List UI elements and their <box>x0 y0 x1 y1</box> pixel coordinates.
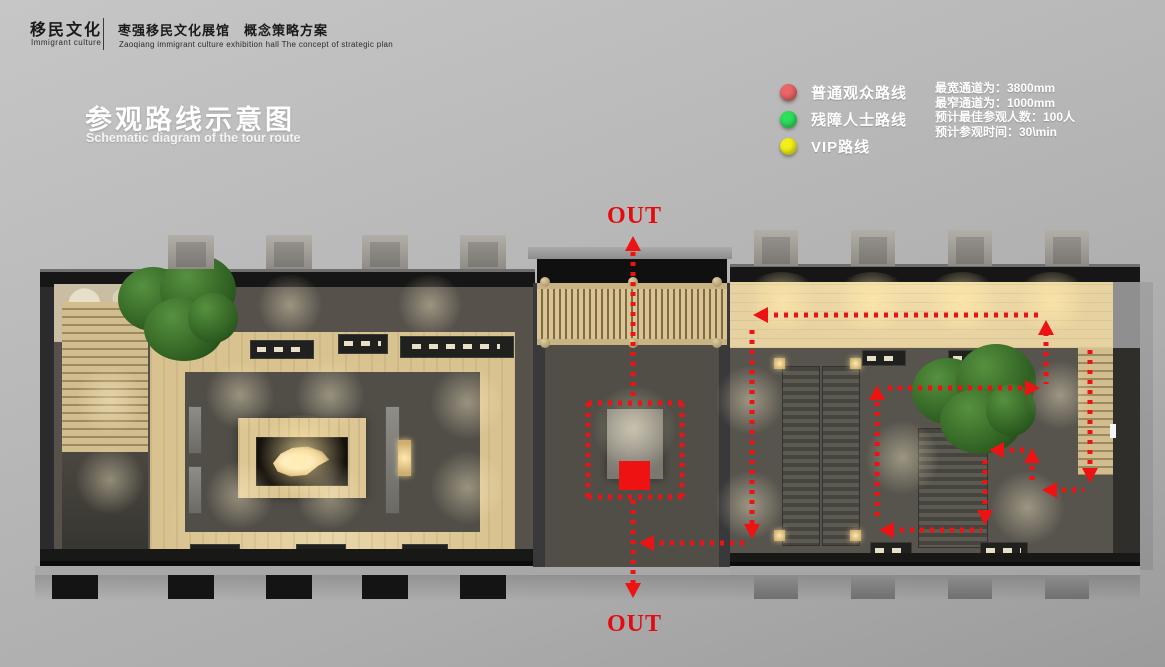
stat-best-visitor-count: 预计最佳参观人数：100人 <box>935 110 1075 125</box>
pillar <box>851 230 895 266</box>
visit-stats: 最宽通道为：3800mm 最窄通道为：1000mm 预计最佳参观人数：100人 … <box>935 81 1075 139</box>
right-hall-sill <box>730 566 1140 575</box>
right-hall-top-wall <box>730 264 1140 282</box>
legend-label: 残障人士路线 <box>811 109 907 130</box>
display-counter <box>400 336 514 358</box>
display-counter <box>862 350 906 366</box>
brand-title-cn: 移民文化 <box>30 16 102 40</box>
ordinary-route-dot-icon <box>780 84 797 101</box>
bridge-post-icon <box>540 277 550 287</box>
pillar <box>168 235 214 269</box>
pillar <box>266 235 312 269</box>
right-staircase <box>1078 348 1113 475</box>
brand-title-en: Immigrant culture <box>31 38 101 47</box>
right-hall-wooden-gallery <box>730 282 1113 348</box>
project-title-en: Zaoqiang immigrant culture exhibition ha… <box>119 40 393 49</box>
tree-icon <box>912 344 1037 462</box>
right-hall-bottom-wall <box>730 553 1140 566</box>
left-staircase-landing <box>62 452 148 564</box>
display-counter <box>338 334 388 354</box>
stat-narrowest-passage: 最窄通道为：1000mm <box>935 96 1075 111</box>
presentation-slide: 移民文化 Immigrant culture 枣强移民文化展馆 概念策略方案 Z… <box>0 0 1165 667</box>
bridge-post-icon <box>712 277 722 287</box>
bridge-post-icon <box>628 277 638 287</box>
stat-visit-duration: 预计参观时间：30\min <box>935 125 1075 140</box>
pillar <box>168 575 214 599</box>
route-legend: 普通观众路线 残障人士路线 VIP路线 <box>780 79 907 160</box>
lamp-icon <box>850 358 861 369</box>
right-edge-shadow <box>1140 282 1153 570</box>
right-hall-corner-block <box>1113 282 1140 348</box>
vip-route-dot-icon <box>780 138 797 155</box>
corridor-stone-exhibit <box>607 409 663 479</box>
door-mark <box>1110 424 1116 438</box>
pillar <box>266 575 312 599</box>
pillar <box>754 230 798 266</box>
pillar <box>948 230 992 266</box>
pillar <box>948 575 992 599</box>
map-relief-icon <box>268 444 333 480</box>
exit-label-bottom: OUT <box>607 611 662 638</box>
pillar <box>460 575 506 599</box>
left-hall-bottom-wall <box>40 549 535 566</box>
stat-widest-passage: 最宽通道为：3800mm <box>935 81 1075 96</box>
lit-display-case <box>398 440 411 476</box>
header-divider <box>103 18 104 50</box>
legend-label: 普通观众路线 <box>811 82 907 103</box>
display-stand <box>188 466 202 514</box>
page-subtitle: Schematic diagram of the tour route <box>86 131 301 145</box>
exit-label-top: OUT <box>607 203 662 230</box>
lamp-icon <box>774 358 785 369</box>
right-hall-right-wall <box>1113 348 1140 566</box>
pillar <box>754 575 798 599</box>
lamp-icon <box>774 530 785 541</box>
bridge-post-icon <box>540 338 550 348</box>
display-stand <box>188 406 202 454</box>
disabled-route-dot-icon <box>780 111 797 128</box>
map-exhibit <box>256 437 348 486</box>
tree-icon <box>118 255 243 367</box>
pillar <box>52 575 98 599</box>
legend-label: VIP路线 <box>811 136 870 157</box>
pillar <box>460 235 506 269</box>
pillar <box>362 575 408 599</box>
bench-row <box>822 366 860 546</box>
left-hall-sill <box>35 566 535 575</box>
pillar <box>851 575 895 599</box>
bridge-post-icon <box>628 338 638 348</box>
pillar <box>1045 230 1089 266</box>
pillar <box>1045 575 1089 599</box>
left-hall-left-wall <box>40 287 54 549</box>
footbridge <box>537 283 727 345</box>
legend-item-vip: VIP路线 <box>780 133 907 160</box>
bench-row <box>782 366 820 546</box>
corridor-top-cap <box>528 247 732 259</box>
pillar <box>362 235 408 269</box>
lamp-icon <box>850 530 861 541</box>
legend-item-disabled: 残障人士路线 <box>780 106 907 133</box>
project-title-cn: 枣强移民文化展馆 概念策略方案 <box>118 20 328 39</box>
bridge-post-icon <box>712 338 722 348</box>
legend-item-ordinary: 普通观众路线 <box>780 79 907 106</box>
display-counter <box>250 340 314 359</box>
